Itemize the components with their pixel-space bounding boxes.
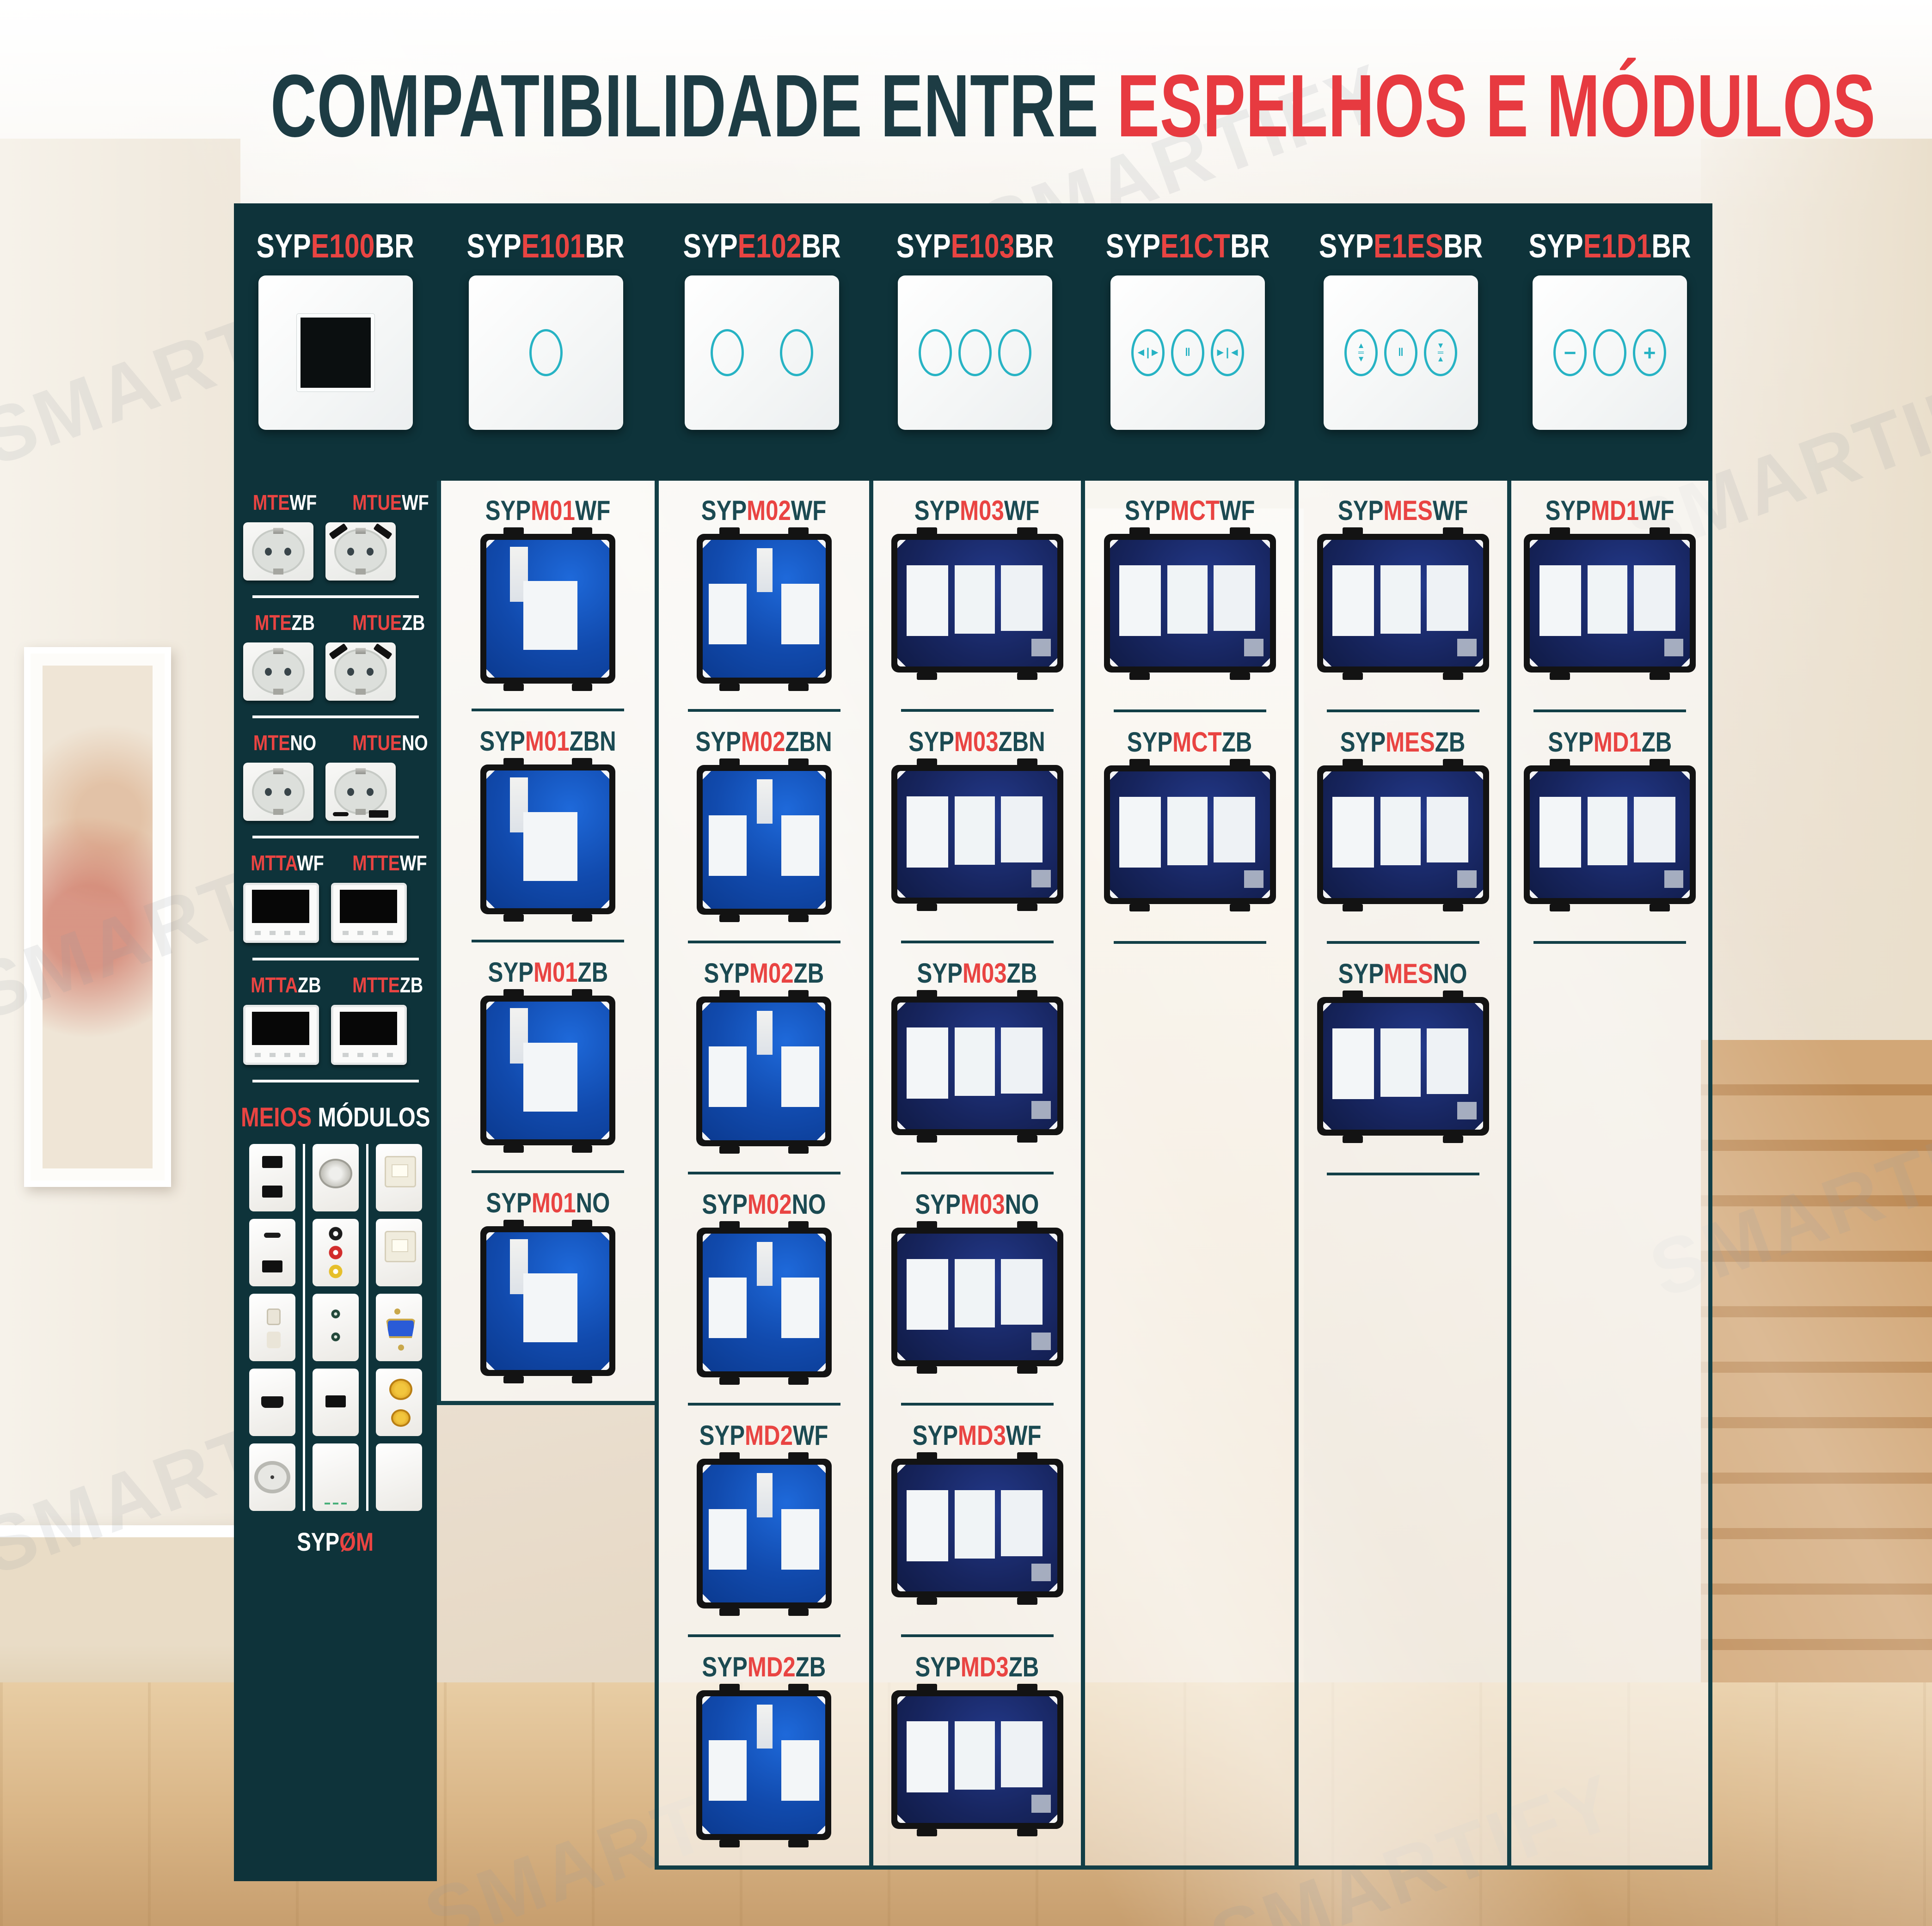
- sidebar-images: [243, 763, 428, 821]
- icon-glyph: ►|◄: [1215, 348, 1240, 357]
- module-pcb-image: [1104, 765, 1276, 904]
- product-code: MTTEZB: [352, 972, 421, 997]
- code-middle: MES: [1383, 495, 1433, 526]
- half-modules-column: [242, 1144, 303, 1511]
- code-prefix: MTTE: [352, 973, 400, 997]
- code-middle: MD1: [1593, 727, 1641, 758]
- module-code: SYPM01WF: [485, 495, 611, 526]
- product-code: MTTEWF: [352, 850, 421, 875]
- faceplate-code: SYPE1ESBR: [1319, 227, 1483, 265]
- schuko-socket-usb-image: [325, 522, 396, 581]
- faceplate-cell-sype101br: SYPE101BR: [437, 203, 655, 481]
- code-suffix: WF: [1639, 495, 1674, 526]
- touch-button-icon: [711, 329, 744, 376]
- faceplate-touch-2gang: [685, 275, 839, 430]
- usb-c-a-icon: [249, 1219, 295, 1286]
- product-code: MTEZB: [251, 610, 319, 635]
- half-modules-grid: [242, 1144, 429, 1511]
- code-suffix: WF: [289, 490, 317, 514]
- sidebar-labels: MTEZB MTUEZB: [243, 610, 428, 635]
- module-pcb-image: [697, 765, 832, 915]
- jack-double-icon: [313, 1294, 359, 1361]
- touch-button-icon: [780, 329, 813, 376]
- faceplate-curtain: ◄|► ‖ ►|◄: [1110, 275, 1265, 430]
- code-prefix: SYP: [917, 958, 963, 989]
- code-prefix: MTUE: [352, 731, 402, 755]
- code-prefix: SYP: [485, 495, 531, 526]
- curtain-close-icon: ►|◄: [1211, 329, 1244, 376]
- touch-button-icon: [919, 329, 952, 376]
- icon-glyph: ▼ ═ ▲: [1437, 342, 1445, 362]
- column-sype103-modules: SYPM03WF SYPM03ZBN SYPM03ZB SYPM03NO SYP…: [869, 481, 1081, 1870]
- code-middle: E103: [951, 228, 1014, 265]
- sidebar-row-zb-sockets: MTEZB MTUEZB: [243, 605, 428, 701]
- module-pcb-image: [891, 765, 1063, 904]
- usb-single-icon: [313, 1369, 359, 1436]
- schuko-socket-usb-bottom-image: [325, 763, 396, 821]
- code-prefix: SYP: [467, 228, 521, 265]
- module-code: SYPM03ZBN: [909, 726, 1045, 758]
- code-suffix: WF: [1220, 495, 1255, 526]
- column-sype101-modules: SYPM01WF SYPM01ZBN SYPM01ZB SYPM01NO: [437, 481, 655, 1405]
- module-code: SYPM03ZB: [917, 957, 1037, 989]
- faceplate-code: SYPE1D1BR: [1528, 227, 1691, 265]
- code-middle: M01: [531, 1187, 576, 1218]
- frame-window-icon: [297, 314, 374, 391]
- plus-icon: +: [1633, 329, 1666, 376]
- module-code: SYPM01ZB: [488, 956, 608, 988]
- code-suffix: NO: [792, 1189, 826, 1220]
- module-cell: SYPM03ZBN: [891, 712, 1063, 940]
- thermostat-image: [331, 1005, 407, 1065]
- code-middle: M02: [748, 1189, 792, 1220]
- divider: [1327, 1173, 1479, 1175]
- product-code: MTEWF: [251, 490, 319, 515]
- title-red-part: MEIOS: [241, 1102, 312, 1132]
- code-prefix: SYP: [1528, 228, 1583, 265]
- module-cell: SYPMESWF: [1317, 481, 1489, 709]
- column-sype1es-modules: SYPMESWF SYPMESZB SYPMESNO: [1294, 481, 1507, 1870]
- code-middle: M01: [531, 495, 575, 526]
- title-dark-part: COMPATIBILIDADE ENTRE: [270, 56, 1117, 155]
- faceplate-cell-sype1d1br: SYPE1D1BR − +: [1507, 203, 1712, 481]
- sidebar-labels: MTTAWF MTTEWF: [243, 850, 428, 875]
- sidebar-labels: MTTAZB MTTEZB: [243, 972, 428, 997]
- faceplate-window-frame: [258, 275, 413, 430]
- socket-2pin-icon: [249, 1294, 295, 1361]
- code-prefix: SYP: [1340, 727, 1386, 758]
- code-middle: E1CT: [1160, 228, 1230, 265]
- code-suffix: ZB: [1007, 958, 1037, 989]
- module-code: SYPMD2ZB: [702, 1651, 826, 1683]
- banana-jacks-icon: [376, 1369, 422, 1436]
- schuko-socket-image: [243, 522, 313, 581]
- sidebar-labels: MTEWF MTUEWF: [243, 490, 428, 515]
- code-middle: MD3: [958, 1420, 1006, 1451]
- speaker-icon: [313, 1144, 359, 1211]
- code-suffix: ZB: [794, 958, 824, 989]
- code-suffix: ZB: [1435, 727, 1466, 758]
- faceplate-cell-sype1ctbr: SYPE1CTBR ◄|► ‖ ►|◄: [1081, 203, 1294, 481]
- code-suffix: WF: [1006, 1420, 1041, 1451]
- module-pcb-image: [891, 1228, 1063, 1366]
- code-middle: MD3: [961, 1651, 1009, 1682]
- module-cell: SYPM02ZBN: [681, 712, 847, 940]
- code-middle: M02: [747, 495, 791, 526]
- code-suffix: ØM: [339, 1527, 374, 1556]
- module-pcb-image: [1524, 765, 1696, 904]
- schuko-socket-usb-image: [325, 642, 396, 701]
- module-code: SYPMESZB: [1340, 726, 1466, 758]
- shutter-up-icon: ▲ ═ ▼: [1344, 329, 1378, 376]
- thermostat-image: [243, 883, 319, 943]
- product-code: MTTAWF: [251, 850, 319, 875]
- module-code: SYPMD1WF: [1546, 495, 1674, 526]
- code-middle: M03: [963, 958, 1007, 989]
- blank-module-icon: [376, 1443, 422, 1511]
- module-cell: SYPMESNO: [1317, 944, 1489, 1173]
- half-modules-column: [303, 1144, 366, 1511]
- schuko-socket-image: [243, 642, 313, 701]
- code-middle: MES: [1386, 727, 1435, 758]
- pause-icon: ‖: [1171, 329, 1204, 376]
- module-cell: SYPMD2WF: [685, 1406, 842, 1634]
- code-middle: M03: [960, 495, 1005, 526]
- module-cell: SYPM02NO: [688, 1174, 840, 1403]
- code-suffix: NO: [1005, 1189, 1039, 1220]
- module-cell: SYPMD1WF: [1524, 481, 1696, 709]
- sidebar-row-zb-thermostats: MTTAZB MTTEZB: [243, 968, 428, 1065]
- faceplate-code: SYPE100BR: [257, 227, 414, 265]
- code-prefix: MTUE: [352, 490, 402, 514]
- usb-double-icon: [249, 1144, 295, 1211]
- module-code: SYPM03NO: [915, 1188, 1039, 1220]
- code-suffix: WF: [1004, 495, 1039, 526]
- column-sype1d1-modules: SYPMD1WF SYPMD1ZB: [1507, 481, 1712, 1870]
- sidebar-labels: MTENO MTUENO: [243, 730, 428, 755]
- product-code: MTENO: [251, 730, 319, 755]
- module-cell: SYPMESZB: [1317, 712, 1489, 941]
- module-pcb-image: [1317, 997, 1489, 1136]
- icon-glyph: +: [1644, 342, 1656, 363]
- icon-glyph: ‖: [1185, 348, 1190, 357]
- module-pcb-image: [1317, 534, 1489, 673]
- module-cell: SYPM01WF: [472, 481, 624, 709]
- module-code: SYPM02NO: [702, 1188, 826, 1220]
- module-cell: SYPMCTWF: [1104, 481, 1276, 709]
- product-code: MTUEZB: [352, 610, 421, 635]
- module-pcb-image: [891, 534, 1063, 673]
- module-cell: SYPM03WF: [891, 481, 1063, 709]
- code-middle: MES: [1384, 958, 1434, 989]
- code-prefix: SYP: [909, 726, 954, 757]
- code-middle: MCT: [1170, 495, 1220, 526]
- module-code: SYPM02ZBN: [696, 726, 832, 758]
- code-prefix: SYP: [297, 1527, 340, 1556]
- code-prefix: SYP: [896, 228, 951, 265]
- code-prefix: MTTE: [352, 851, 400, 875]
- code-prefix: SYP: [1127, 727, 1172, 758]
- product-code: MTUEWF: [352, 490, 421, 515]
- module-cell: SYPMCTZB: [1104, 712, 1276, 941]
- rca-triple-icon: [313, 1219, 359, 1286]
- code-suffix: ZB: [298, 973, 321, 997]
- code-prefix: MTTA: [251, 851, 297, 875]
- divider: [252, 836, 419, 838]
- module-pcb-image: [1524, 534, 1696, 673]
- code-middle: MD1: [1591, 495, 1639, 526]
- code-suffix: WF: [297, 851, 324, 875]
- code-suffix: BR: [585, 228, 625, 265]
- module-code: SYPM02WF: [701, 495, 827, 526]
- code-middle: E100: [311, 228, 375, 265]
- thermostat-image: [243, 1005, 319, 1065]
- sidebar-images: [243, 1005, 428, 1065]
- code-middle: MCT: [1173, 727, 1222, 758]
- faceplate-code: SYPE102BR: [683, 227, 840, 265]
- code-suffix: BR: [1443, 228, 1483, 265]
- column-sype102-modules: SYPM02WF SYPM02ZBN SYPM02ZB SYPM02NO SYP…: [655, 481, 869, 1870]
- code-suffix: ZB: [1641, 727, 1672, 758]
- code-suffix: BR: [1651, 228, 1691, 265]
- code-suffix: ZBN: [785, 726, 832, 757]
- product-code: MTUENO: [352, 730, 421, 755]
- sidebar-images: [243, 642, 428, 701]
- half-modules-footer-code: SYPØM: [297, 1527, 374, 1557]
- sidebar-row-no-sockets: MTENO MTUENO: [243, 726, 428, 821]
- faceplate-header-band: SYPE100BR SYPE101BR SYPE102BR SYPE103BR …: [234, 203, 1712, 481]
- module-pcb-image: [697, 1459, 832, 1608]
- code-prefix: SYP: [1338, 958, 1384, 989]
- module-code: SYPM01ZBN: [479, 725, 616, 757]
- faceplate-shutter: ▲ ═ ▼ ‖ ▼ ═ ▲: [1324, 275, 1478, 430]
- mini-usb-icon: [249, 1369, 295, 1436]
- code-prefix: SYP: [1338, 495, 1383, 526]
- module-pcb-image: [891, 997, 1063, 1135]
- page-title: COMPATIBILIDADE ENTRE ESPELHOS E MÓDULOS: [270, 55, 1662, 157]
- module-pcb-image: [1104, 534, 1276, 673]
- module-pcb-image: [480, 764, 615, 914]
- code-middle: MD2: [745, 1420, 793, 1451]
- faceplate-code: SYPE103BR: [896, 227, 1054, 265]
- code-suffix: ZBN: [999, 726, 1045, 757]
- touch-button-icon: [998, 329, 1031, 376]
- code-prefix: MTTA: [251, 973, 298, 997]
- code-prefix: SYP: [1106, 228, 1160, 265]
- minus-icon: −: [1553, 329, 1587, 376]
- code-prefix: SYP: [914, 495, 960, 526]
- faceplate-touch-1gang: [469, 275, 623, 430]
- code-suffix: WF: [1433, 495, 1468, 526]
- code-prefix: SYP: [488, 957, 533, 988]
- code-middle: E1D1: [1583, 228, 1652, 265]
- module-code: SYPMD3ZB: [915, 1651, 1039, 1683]
- rj45-icon: [376, 1219, 422, 1286]
- code-suffix: NO: [402, 731, 428, 755]
- module-pcb-image: [697, 534, 832, 684]
- divider: [1533, 941, 1686, 944]
- code-middle: E101: [521, 228, 585, 265]
- module-code: SYPMD1ZB: [1548, 726, 1672, 758]
- tv-coax-icon: [249, 1443, 295, 1511]
- code-prefix: SYP: [913, 1420, 958, 1451]
- module-pcb-image: [697, 1228, 832, 1377]
- sidebar-row-wf-sockets: MTEWF MTUEWF: [243, 485, 428, 581]
- module-cell: SYPMD3ZB: [891, 1637, 1063, 1865]
- touch-button-icon: [529, 329, 563, 376]
- module-pcb-image: [696, 997, 831, 1146]
- faceplate-cell-sype103br: SYPE103BR: [869, 203, 1081, 481]
- module-pcb-image: [891, 1690, 1063, 1829]
- rj45-icon: [376, 1144, 422, 1211]
- code-prefix: MTE: [252, 490, 289, 514]
- module-pcb-image: [480, 1226, 615, 1376]
- module-code: SYPM02ZB: [704, 957, 824, 989]
- title-red-part: ESPELHOS E MÓDULOS: [1117, 56, 1876, 155]
- thermostat-image: [331, 883, 407, 943]
- title-white-part: MÓDULOS: [312, 1102, 430, 1132]
- module-code: SYPMD3WF: [913, 1419, 1042, 1451]
- module-code: SYPMESWF: [1338, 495, 1468, 526]
- code-suffix: ZB: [1009, 1651, 1039, 1682]
- code-prefix: SYP: [701, 495, 747, 526]
- module-code: SYPMCTWF: [1125, 495, 1255, 526]
- module-cell: SYPM02WF: [687, 481, 840, 709]
- code-middle: M01: [534, 957, 578, 988]
- module-cell: SYPMD1ZB: [1524, 712, 1696, 941]
- code-suffix: NO: [576, 1187, 610, 1218]
- code-prefix: SYP: [479, 726, 525, 757]
- blank-module-icon: [313, 1443, 359, 1511]
- code-suffix: WF: [402, 490, 429, 514]
- divider: [252, 715, 419, 718]
- code-prefix: SYP: [1319, 228, 1374, 265]
- module-pcb-image: [480, 534, 615, 684]
- module-cell: SYPM03NO: [891, 1174, 1063, 1403]
- code-suffix: WF: [399, 851, 427, 875]
- module-pcb-image: [480, 996, 615, 1145]
- code-prefix: SYP: [699, 1420, 745, 1451]
- module-code: SYPMD2WF: [699, 1419, 828, 1451]
- module-code: SYPMESNO: [1338, 958, 1467, 990]
- faceplate-cell-sype1esbr: SYPE1ESBR ▲ ═ ▼ ‖ ▼ ═ ▲: [1294, 203, 1507, 481]
- divider: [252, 595, 419, 598]
- touch-button-icon: [958, 329, 992, 376]
- code-suffix: WF: [575, 495, 610, 526]
- code-suffix: NO: [290, 731, 316, 755]
- module-cell: SYPM02ZB: [691, 943, 837, 1172]
- blank-touch-icon: [1593, 329, 1626, 376]
- code-middle: M02: [741, 726, 785, 757]
- icon-glyph: ‖: [1398, 348, 1404, 357]
- faceplate-cell-sype102br: SYPE102BR: [655, 203, 869, 481]
- code-middle: M02: [749, 958, 794, 989]
- icon-glyph: ▲ ═ ▼: [1357, 342, 1365, 362]
- faceplate-code: SYPE1CTBR: [1106, 227, 1270, 265]
- vga-icon: [376, 1294, 422, 1361]
- code-suffix: ZB: [796, 1651, 826, 1682]
- icon-glyph: ◄|►: [1135, 348, 1160, 357]
- code-prefix: SYP: [696, 726, 741, 757]
- schuko-socket-image: [243, 763, 313, 821]
- code-prefix: SYP: [257, 228, 311, 265]
- code-middle: E102: [737, 228, 801, 265]
- code-prefix: MTE: [255, 611, 292, 635]
- product-code: MTTAZB: [251, 972, 319, 997]
- faceplate-dimmer: − +: [1533, 275, 1687, 430]
- divider: [252, 958, 419, 960]
- code-prefix: SYP: [704, 958, 749, 989]
- module-pcb-image: [1317, 765, 1489, 904]
- code-middle: M03: [961, 1189, 1005, 1220]
- module-cell: SYPM01ZB: [475, 942, 621, 1170]
- code-suffix: ZBN: [570, 726, 616, 757]
- module-cell: SYPM01ZBN: [465, 711, 631, 939]
- code-middle: M01: [525, 726, 570, 757]
- code-suffix: ZB: [577, 957, 608, 988]
- code-suffix: BR: [801, 228, 840, 265]
- divider: [252, 1080, 419, 1082]
- code-prefix: SYP: [1125, 495, 1170, 526]
- code-prefix: SYP: [1548, 727, 1593, 758]
- code-middle: E1ES: [1374, 228, 1443, 265]
- module-cell: SYPMD3WF: [891, 1406, 1063, 1634]
- code-prefix: SYP: [486, 1187, 531, 1218]
- code-suffix: ZB: [1222, 727, 1252, 758]
- divider: [1114, 941, 1266, 944]
- code-middle: MD2: [748, 1651, 796, 1682]
- code-suffix: NO: [1433, 958, 1467, 989]
- pause-icon: ‖: [1384, 329, 1417, 376]
- code-prefix: SYP: [683, 228, 737, 265]
- column-sype1ct-modules: SYPMCTWF SYPMCTZB: [1081, 481, 1294, 1870]
- code-prefix: MTE: [253, 731, 290, 755]
- code-prefix: MTUE: [352, 611, 402, 635]
- sidebar-images: [243, 883, 428, 943]
- code-prefix: SYP: [1546, 495, 1591, 526]
- code-prefix: SYP: [702, 1189, 748, 1220]
- faceplate-cell-sype100br: SYPE100BR: [234, 203, 437, 481]
- code-suffix: BR: [1014, 228, 1054, 265]
- faceplate-touch-3gang: [898, 275, 1052, 430]
- sidebar-row-wf-thermostats: MTTAWF MTTEWF: [243, 846, 428, 943]
- sidebar-mirror-modules: MTEWF MTUEWF MTEZB MTUEZB MTENO MTUE: [234, 481, 437, 1881]
- code-suffix: ZB: [291, 611, 314, 635]
- module-code: SYPM03WF: [914, 495, 1040, 526]
- code-suffix: WF: [791, 495, 826, 526]
- module-pcb-image: [696, 1690, 831, 1840]
- module-code: SYPMCTZB: [1127, 726, 1252, 758]
- module-pcb-image: [891, 1459, 1063, 1597]
- code-prefix: SYP: [915, 1189, 961, 1220]
- code-prefix: SYP: [702, 1651, 748, 1682]
- sidebar-images: [243, 522, 428, 581]
- half-modules-title: MEIOS MÓDULOS: [241, 1102, 430, 1133]
- icon-glyph: −: [1564, 342, 1576, 363]
- code-suffix: BR: [1230, 228, 1270, 265]
- code-middle: M03: [954, 726, 999, 757]
- code-suffix: WF: [793, 1420, 828, 1451]
- module-cell: SYPM03ZB: [891, 943, 1063, 1172]
- module-cell: SYPMD2ZB: [688, 1637, 840, 1865]
- faceplate-code: SYPE101BR: [467, 227, 625, 265]
- code-suffix: ZB: [399, 973, 423, 997]
- curtain-open-icon: ◄|►: [1131, 329, 1165, 376]
- module-cell: SYPM01NO: [472, 1173, 624, 1401]
- shutter-down-icon: ▼ ═ ▲: [1424, 329, 1457, 376]
- half-modules-column: [366, 1144, 429, 1511]
- code-suffix: ZB: [402, 611, 425, 635]
